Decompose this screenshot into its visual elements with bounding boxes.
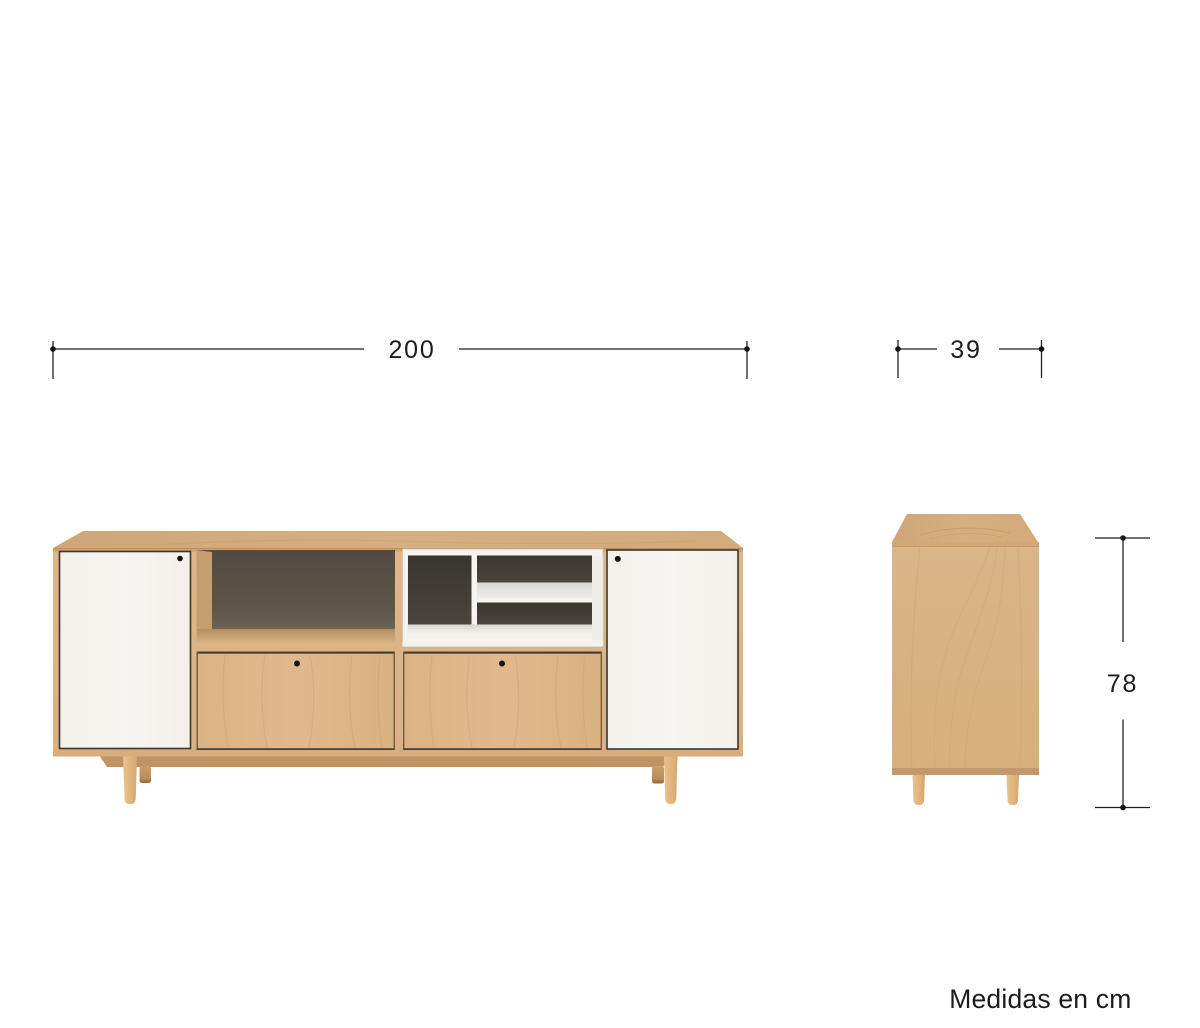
svg-text:Medidas en cm: Medidas en cm <box>949 984 1131 1014</box>
svg-text:78: 78 <box>1107 670 1138 698</box>
svg-text:39: 39 <box>950 336 981 364</box>
svg-text:200: 200 <box>388 336 435 364</box>
